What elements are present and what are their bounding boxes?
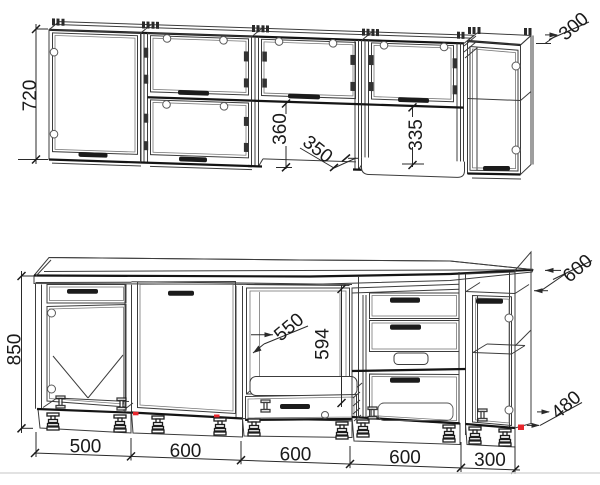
svg-text:300: 300 (474, 450, 506, 471)
svg-text:850: 850 (5, 334, 26, 366)
svg-text:335: 335 (406, 119, 427, 151)
svg-text:500: 500 (70, 437, 102, 458)
svg-text:360: 360 (270, 113, 291, 145)
svg-text:720: 720 (20, 80, 41, 112)
svg-text:594: 594 (313, 328, 334, 360)
svg-text:600: 600 (280, 444, 312, 465)
svg-text:600: 600 (389, 448, 421, 469)
svg-text:600: 600 (170, 441, 202, 462)
